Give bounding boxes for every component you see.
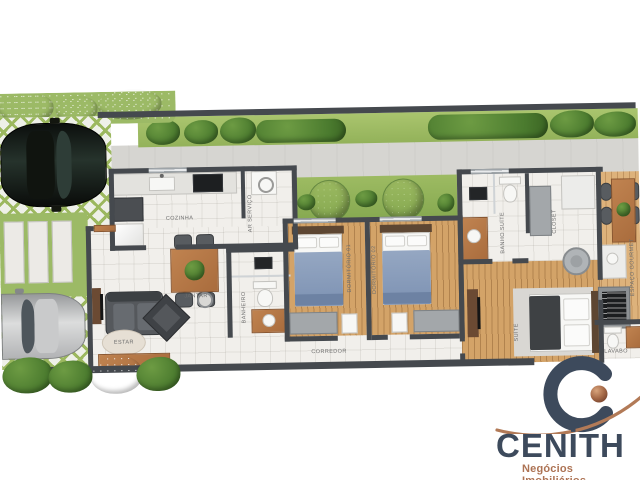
cenith-logo-mark	[493, 350, 640, 434]
door-leaf	[341, 313, 357, 333]
front-door-sill	[94, 225, 116, 232]
room-label-suite: SUÍTE	[513, 314, 520, 350]
car-mirror	[15, 288, 24, 293]
suite-duvet	[529, 296, 561, 351]
cenith-logo-tagline: Negócios Imobiliários	[522, 463, 586, 480]
wall-segment	[512, 258, 528, 263]
screenshot-root: COZINHA AR SERVIÇO JANTAR ESTAR BANHEIRO…	[0, 0, 640, 480]
pillow	[407, 235, 427, 246]
room-label-estar: ESTAR	[102, 339, 146, 346]
shrub	[48, 360, 93, 393]
car-silver-windshield	[21, 299, 35, 353]
cenith-logo-wordmark: CENİTH	[496, 429, 625, 463]
shrub	[136, 357, 181, 392]
wall-segment	[595, 319, 640, 325]
toilet-tank	[499, 176, 521, 184]
toilet-bowl	[607, 334, 619, 349]
sofa-back	[107, 292, 161, 302]
lavabo-vanity	[626, 326, 640, 348]
room-label-banheiro: BANHEIRO	[241, 283, 248, 331]
window	[380, 216, 422, 222]
path-slab	[4, 221, 25, 283]
door-leaf	[391, 312, 407, 332]
toilet-tank	[253, 281, 277, 289]
shrub	[2, 357, 53, 394]
room-label-corredor: CORREDOR	[297, 348, 361, 355]
wall-segment	[410, 333, 460, 339]
path-slab	[28, 221, 49, 283]
refrigerator	[114, 223, 144, 247]
fern	[297, 194, 315, 210]
toilet-bowl	[257, 289, 273, 307]
hedge	[428, 113, 548, 140]
bed-throw	[295, 294, 343, 306]
pillow	[319, 237, 339, 248]
room-label-ar-servico: AR SERVIÇO	[247, 189, 254, 237]
logo-copper-sphere	[591, 386, 608, 403]
shower-head	[254, 257, 272, 269]
tv	[100, 294, 103, 320]
toilet-bowl	[503, 184, 517, 202]
closet-wardrobe	[529, 186, 552, 236]
shrub	[90, 355, 143, 394]
car-mirror	[51, 206, 61, 212]
wall-segment	[372, 335, 388, 340]
bed-throw	[383, 292, 431, 304]
window	[294, 218, 336, 224]
sofa-cushion	[113, 303, 134, 330]
room-label-espaco-gourmet: ESPAÇO GOURMET	[629, 238, 636, 296]
tv	[477, 297, 481, 329]
table-plant	[184, 260, 204, 280]
car-silver-roof	[34, 299, 59, 353]
wardrobe	[289, 312, 337, 335]
pillow	[564, 324, 590, 346]
car-mirror	[50, 118, 60, 124]
room-label-dormitorio-02: DORMITÓRIO 02	[371, 241, 378, 299]
pillow	[297, 237, 317, 248]
room-label-banho-suite: BANHO SUÍTE	[499, 207, 506, 259]
window	[471, 169, 509, 175]
faucet	[160, 174, 164, 178]
car-dark-windshield	[56, 131, 72, 199]
wall-segment	[458, 259, 492, 265]
pillow	[563, 298, 589, 320]
hedge	[256, 119, 346, 144]
room-label-dormitorio-01: DORMITÓRIO 01	[346, 239, 353, 297]
wall-segment	[285, 336, 338, 342]
fern	[437, 194, 454, 212]
wall-segment	[110, 245, 146, 251]
shower-head	[469, 187, 487, 200]
car-dark-roof	[26, 131, 55, 200]
room-label-closet: CLOSET	[551, 202, 558, 242]
pillow	[385, 235, 405, 246]
path-slab	[52, 221, 73, 283]
fern	[355, 190, 377, 207]
kitchen-sink	[149, 177, 175, 191]
cooktop	[193, 174, 223, 193]
wardrobe	[413, 309, 459, 332]
closet-dresser	[561, 175, 596, 210]
room-label-cozinha: COZINHA	[150, 215, 210, 222]
kitchen-cabinet	[113, 197, 143, 222]
table-plant	[616, 202, 630, 216]
window	[149, 167, 187, 173]
room-label-jantar: JANTAR	[171, 293, 221, 300]
